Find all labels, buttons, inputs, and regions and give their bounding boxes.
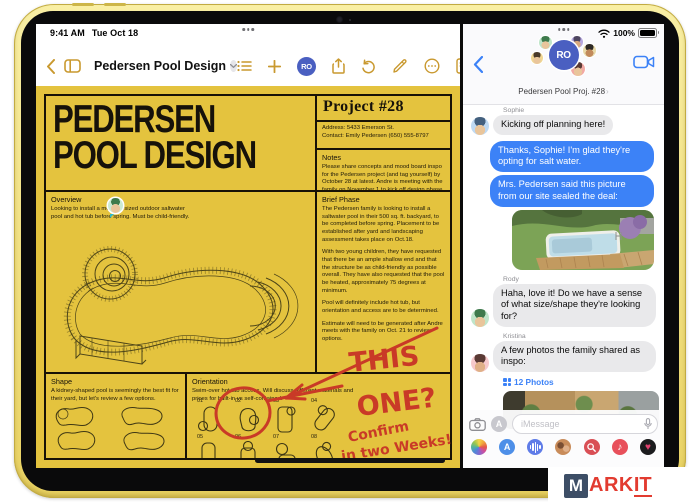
sender-label: Kristina xyxy=(503,333,526,340)
audio-wave-app-icon[interactable] xyxy=(527,439,543,455)
watermark-text-underlined: IT xyxy=(634,475,652,497)
overview-heading: Overview xyxy=(51,195,310,204)
incoming-message-row: A few photos the family shared as inspo: xyxy=(471,341,656,372)
digital-touch-icon[interactable]: ♥ xyxy=(640,439,656,455)
address-cell: Address: 5433 Emerson St. Contact: Emily… xyxy=(317,122,450,150)
appstore-app-icon[interactable]: A xyxy=(499,439,515,455)
message-input-field[interactable] xyxy=(512,414,658,434)
pool-photo-attachment[interactable] xyxy=(512,210,654,270)
avatar-rody[interactable] xyxy=(471,309,489,327)
imessage-apps-button[interactable]: A xyxy=(491,416,507,432)
multitask-indicator[interactable] xyxy=(242,28,254,31)
shape-body: A kidney-shaped pool is seemingly the be… xyxy=(51,388,180,403)
message-bubble-outgoing[interactable]: Thanks, Sophie! I'm glad they're opting … xyxy=(490,141,654,172)
incoming-message-row: Haha, love it! Do we have a sense of wha… xyxy=(471,284,656,327)
option-number: 01 xyxy=(197,398,225,404)
messages-app-window: 100% RO Pedersen P xyxy=(463,24,664,468)
poster-title-cell: PEDERSEN POOL DESIGN xyxy=(46,96,317,192)
back-button[interactable] xyxy=(46,59,55,74)
pool-option-sketch xyxy=(273,441,299,458)
collaborator-cursor-avatar xyxy=(108,198,123,213)
battery-percent: 100% xyxy=(613,28,635,38)
pool-option-sketch xyxy=(273,405,299,435)
option-number: 04 xyxy=(311,398,339,404)
brief-para4: Estimate will need to be generated after… xyxy=(322,321,445,344)
collaboration-avatar-button[interactable]: RO xyxy=(297,57,316,76)
collaborator-caret xyxy=(110,214,114,218)
orientation-heading: Orientation xyxy=(192,377,445,386)
notes-heading: Notes xyxy=(322,153,445,162)
contact-line: Contact: Emily Pedersen (650) 555-8797 xyxy=(322,133,445,141)
memoji-stickers-icon[interactable] xyxy=(555,439,571,455)
title-dropdown-button[interactable] xyxy=(230,60,237,72)
document-title[interactable]: Pedersen Pool Design xyxy=(94,59,226,73)
address-line: Address: 5433 Emerson St. xyxy=(322,125,445,133)
orientation-options-row1: 01 02 03 04 xyxy=(197,398,339,435)
dictation-mic-icon[interactable] xyxy=(644,418,652,430)
front-camera xyxy=(336,16,343,23)
hash-images-icon[interactable] xyxy=(584,439,600,455)
screenshot-stage: 9:41 AMTue Oct 18 Pedersen Pool Design xyxy=(0,0,700,504)
sender-label: Rody xyxy=(503,276,519,283)
message-input[interactable] xyxy=(513,415,657,433)
member-avatar xyxy=(583,44,596,57)
pages-toolbar: Pedersen Pool Design RO xyxy=(36,50,460,82)
notes-cell: Notes Please share concepts and mood boa… xyxy=(317,150,450,192)
project-heading-cell: Project #28 xyxy=(317,96,450,122)
add-button[interactable] xyxy=(268,60,281,73)
photos-grid-icon xyxy=(503,378,511,386)
watermark-logo: M xyxy=(564,474,588,498)
member-avatar xyxy=(531,52,543,64)
orientation-cell: Orientation Swim-over hot tub access. Wi… xyxy=(187,374,450,458)
pool-option-sketch xyxy=(197,405,223,435)
sender-label: Sophie xyxy=(503,107,524,114)
option-number: 05 xyxy=(197,434,225,440)
watermark: M ARK IT xyxy=(548,467,700,504)
camera-icon[interactable] xyxy=(469,418,486,431)
volume-button xyxy=(72,3,94,6)
notes-body: Please share concepts and mood board ins… xyxy=(322,164,445,192)
message-bubble[interactable]: Kicking off planning here! xyxy=(493,115,613,135)
watermark-text: ARK xyxy=(589,474,634,497)
project-heading: Project #28 xyxy=(317,96,450,118)
more-options-icon[interactable] xyxy=(424,58,440,74)
incoming-message-row: Kicking off planning here! xyxy=(471,115,613,135)
option-number: 08 xyxy=(311,434,339,440)
brief-para1: The Pedersen family is looking to instal… xyxy=(322,206,445,244)
option-number: 06 xyxy=(235,434,263,440)
option-number: 07 xyxy=(273,434,301,440)
pool-option-sketch xyxy=(311,405,337,435)
poster-frame: PEDERSEN POOL DESIGN Project #28 Address… xyxy=(44,94,452,460)
message-bubble-outgoing[interactable]: Mrs. Pedersen said this picture from our… xyxy=(490,175,654,206)
group-logo-avatar: RO xyxy=(549,40,579,70)
orientation-options-row2: 05 06 07 08 xyxy=(197,434,339,458)
conversation-title[interactable]: Pedersen Pool Proj. #28› xyxy=(463,87,664,96)
battery-icon xyxy=(638,28,657,38)
status-date: Tue Oct 18 xyxy=(92,28,138,38)
imessage-app-strip: A ♪ ♥ xyxy=(463,434,664,455)
list-view-icon[interactable] xyxy=(237,60,252,72)
pool-shape-sketches xyxy=(51,404,181,456)
brief-heading: Brief Phase xyxy=(322,195,445,204)
ipad-bezel: 9:41 AMTue Oct 18 Pedersen Pool Design xyxy=(21,11,679,491)
home-indicator[interactable] xyxy=(255,458,445,463)
sidebar-toggle-icon[interactable] xyxy=(64,59,81,73)
markup-pen-icon[interactable] xyxy=(392,58,408,74)
status-time: 9:41 AM xyxy=(50,28,85,38)
multitask-indicator[interactable] xyxy=(558,28,570,31)
undo-icon[interactable] xyxy=(361,59,376,74)
pool-option-sketch xyxy=(235,405,261,435)
message-bubble[interactable]: Haha, love it! Do we have a sense of wha… xyxy=(493,284,656,327)
camera-sensor xyxy=(349,19,351,21)
photos-collection-link[interactable]: 12 Photos xyxy=(503,377,554,387)
shape-cell: Shape A kidney-shaped pool is seemingly … xyxy=(46,374,187,458)
brief-phase-cell: Brief Phase The Pedersen family is looki… xyxy=(317,192,450,374)
ipad-device: 9:41 AMTue Oct 18 Pedersen Pool Design xyxy=(14,4,686,498)
message-composer: A A ♪ ♥ xyxy=(463,410,664,468)
ipad-screen: 9:41 AMTue Oct 18 Pedersen Pool Design xyxy=(36,24,664,468)
brief-para2: With two young children, they have reque… xyxy=(322,249,445,295)
message-bubble[interactable]: A few photos the family shared as inspo: xyxy=(493,341,656,372)
pages-app-window: 9:41 AMTue Oct 18 Pedersen Pool Design xyxy=(36,24,460,468)
avatar-kristina[interactable] xyxy=(471,354,489,372)
volume-button xyxy=(104,3,126,6)
poster-document[interactable]: PEDERSEN POOL DESIGN Project #28 Address… xyxy=(36,86,460,468)
option-number: 03 xyxy=(273,398,301,404)
status-bar-right: 100% xyxy=(598,28,657,38)
shape-heading: Shape xyxy=(51,377,180,386)
poster-title: PEDERSEN POOL DESIGN xyxy=(53,102,263,174)
pool-option-sketch xyxy=(311,441,337,458)
pool-option-sketch xyxy=(197,441,223,458)
pool-option-sketch xyxy=(235,441,261,458)
pool-wireframe-sketch xyxy=(46,226,317,370)
brief-para3: Pool will definitely include hot tub, bu… xyxy=(322,300,445,315)
overview-cell: Overview Looking to install a medium-siz… xyxy=(46,192,317,374)
option-number: 02 xyxy=(235,398,263,404)
wifi-icon xyxy=(598,29,610,38)
avatar-sophie[interactable] xyxy=(471,117,489,135)
share-icon[interactable] xyxy=(332,58,345,74)
facetime-video-button[interactable] xyxy=(633,55,655,69)
status-bar-left: 9:41 AMTue Oct 18 xyxy=(50,28,138,38)
photos-app-icon[interactable] xyxy=(471,439,487,455)
music-app-icon[interactable]: ♪ xyxy=(612,439,628,455)
messages-back-button[interactable] xyxy=(473,56,483,73)
group-avatar-cluster[interactable]: RO xyxy=(531,36,597,82)
